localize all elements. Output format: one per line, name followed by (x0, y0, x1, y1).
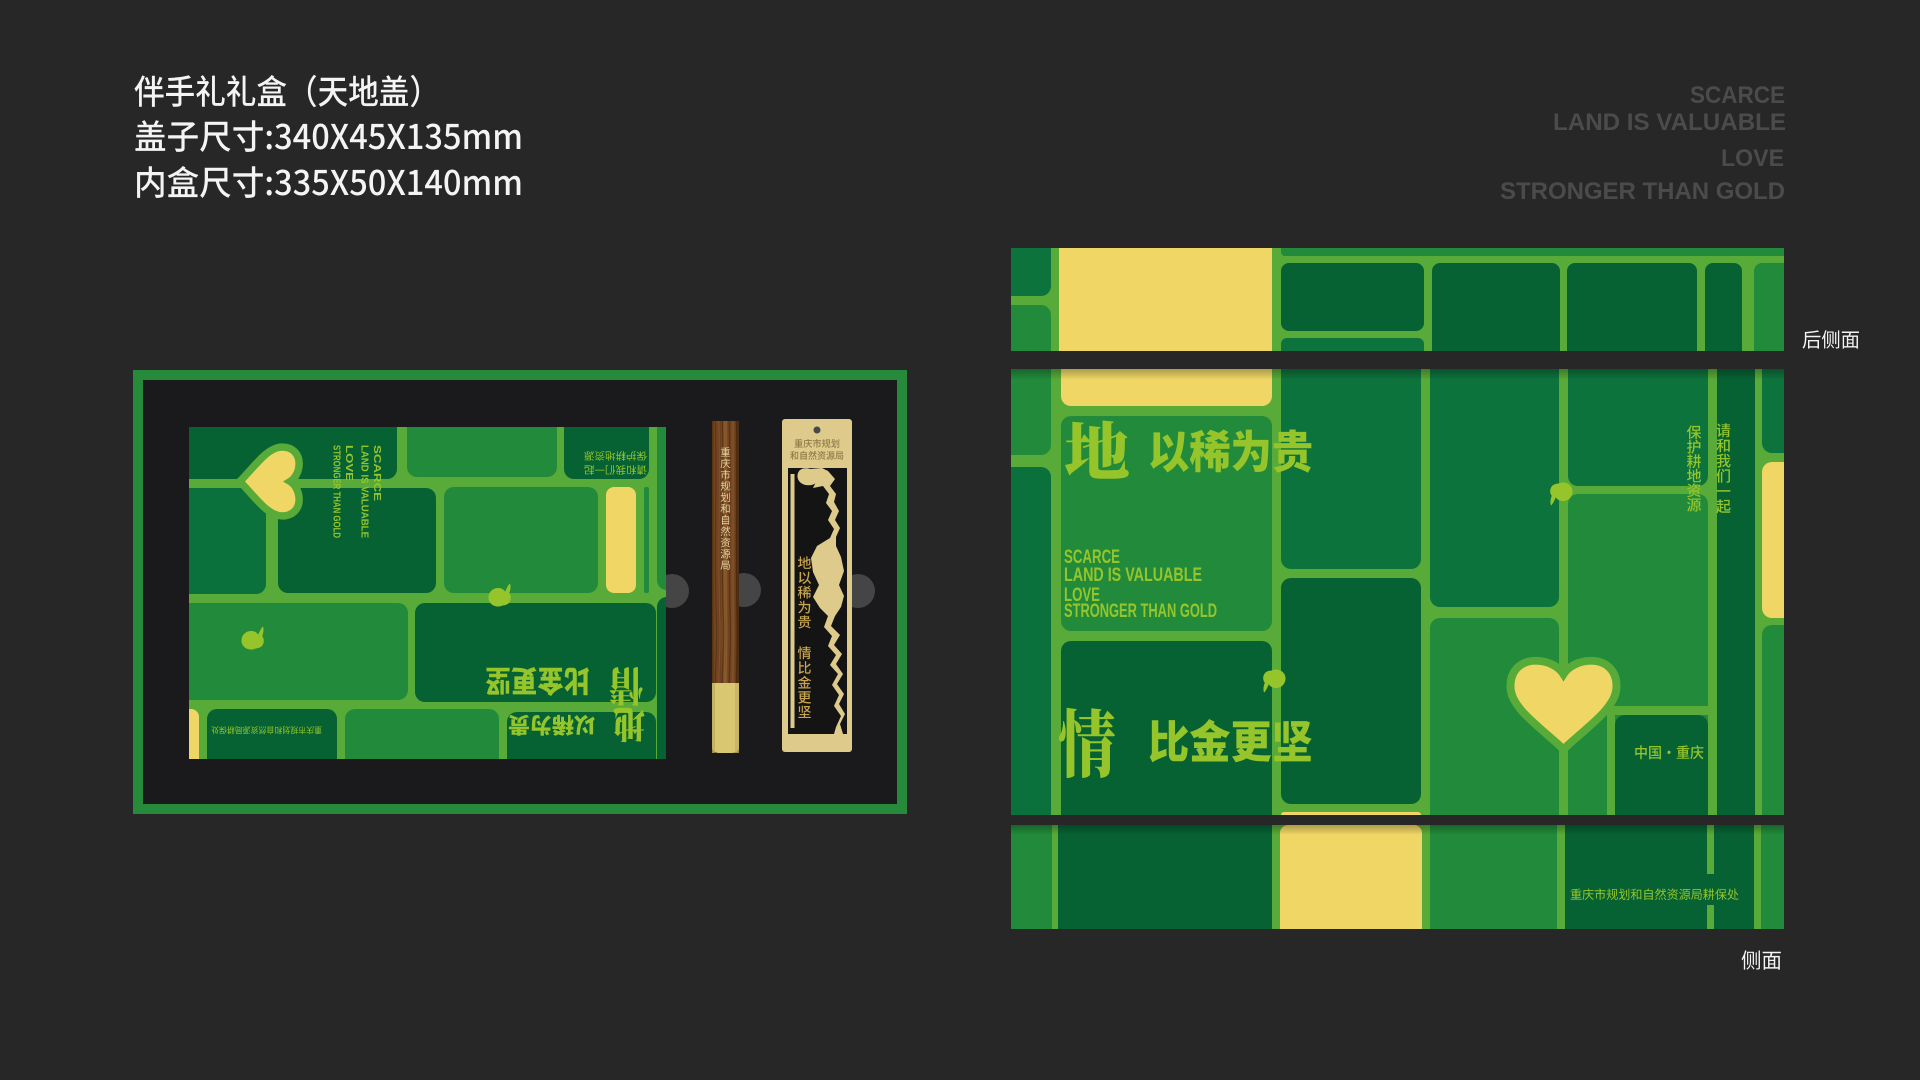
svg-text:LOVE: LOVE (1721, 145, 1784, 172)
svg-text:STRONGER THAN GOLD: STRONGER THAN GOLD (1064, 601, 1217, 622)
svg-text:LAND IS VALUABLE: LAND IS VALUABLE (359, 445, 371, 538)
svg-text:SCARCE: SCARCE (371, 445, 383, 501)
svg-text:STRONGER THAN GOLD: STRONGER THAN GOLD (1500, 178, 1785, 205)
svg-text:STRONGER THAN GOLD: STRONGER THAN GOLD (331, 445, 343, 538)
svg-text:LAND IS VALUABLE: LAND IS VALUABLE (1553, 109, 1786, 136)
svg-text:LOVE: LOVE (343, 445, 355, 481)
svg-text:SCARCE: SCARCE (1690, 82, 1785, 109)
svg-text:LAND IS VALUABLE: LAND IS VALUABLE (1064, 565, 1202, 586)
